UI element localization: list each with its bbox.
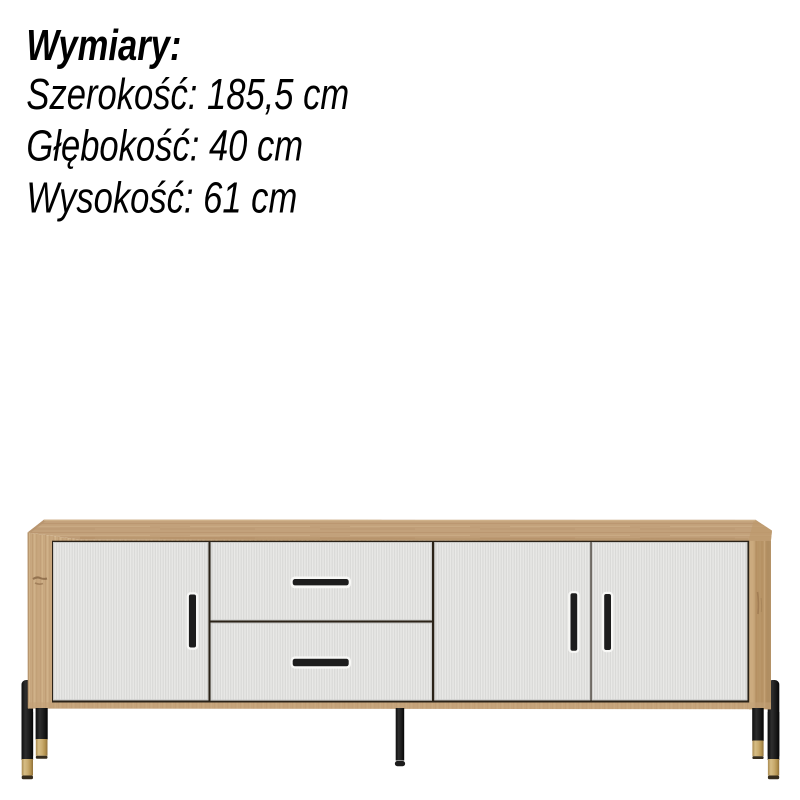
svg-text:Głębokość: 40 cm: Głębokość: 40 cm xyxy=(26,122,303,171)
svg-text:Szerokość: 185,5 cm: Szerokość: 185,5 cm xyxy=(26,70,349,119)
svg-text:Wymiary:: Wymiary: xyxy=(26,21,181,70)
svg-text:Wysokość: 61 cm: Wysokość: 61 cm xyxy=(26,174,297,223)
